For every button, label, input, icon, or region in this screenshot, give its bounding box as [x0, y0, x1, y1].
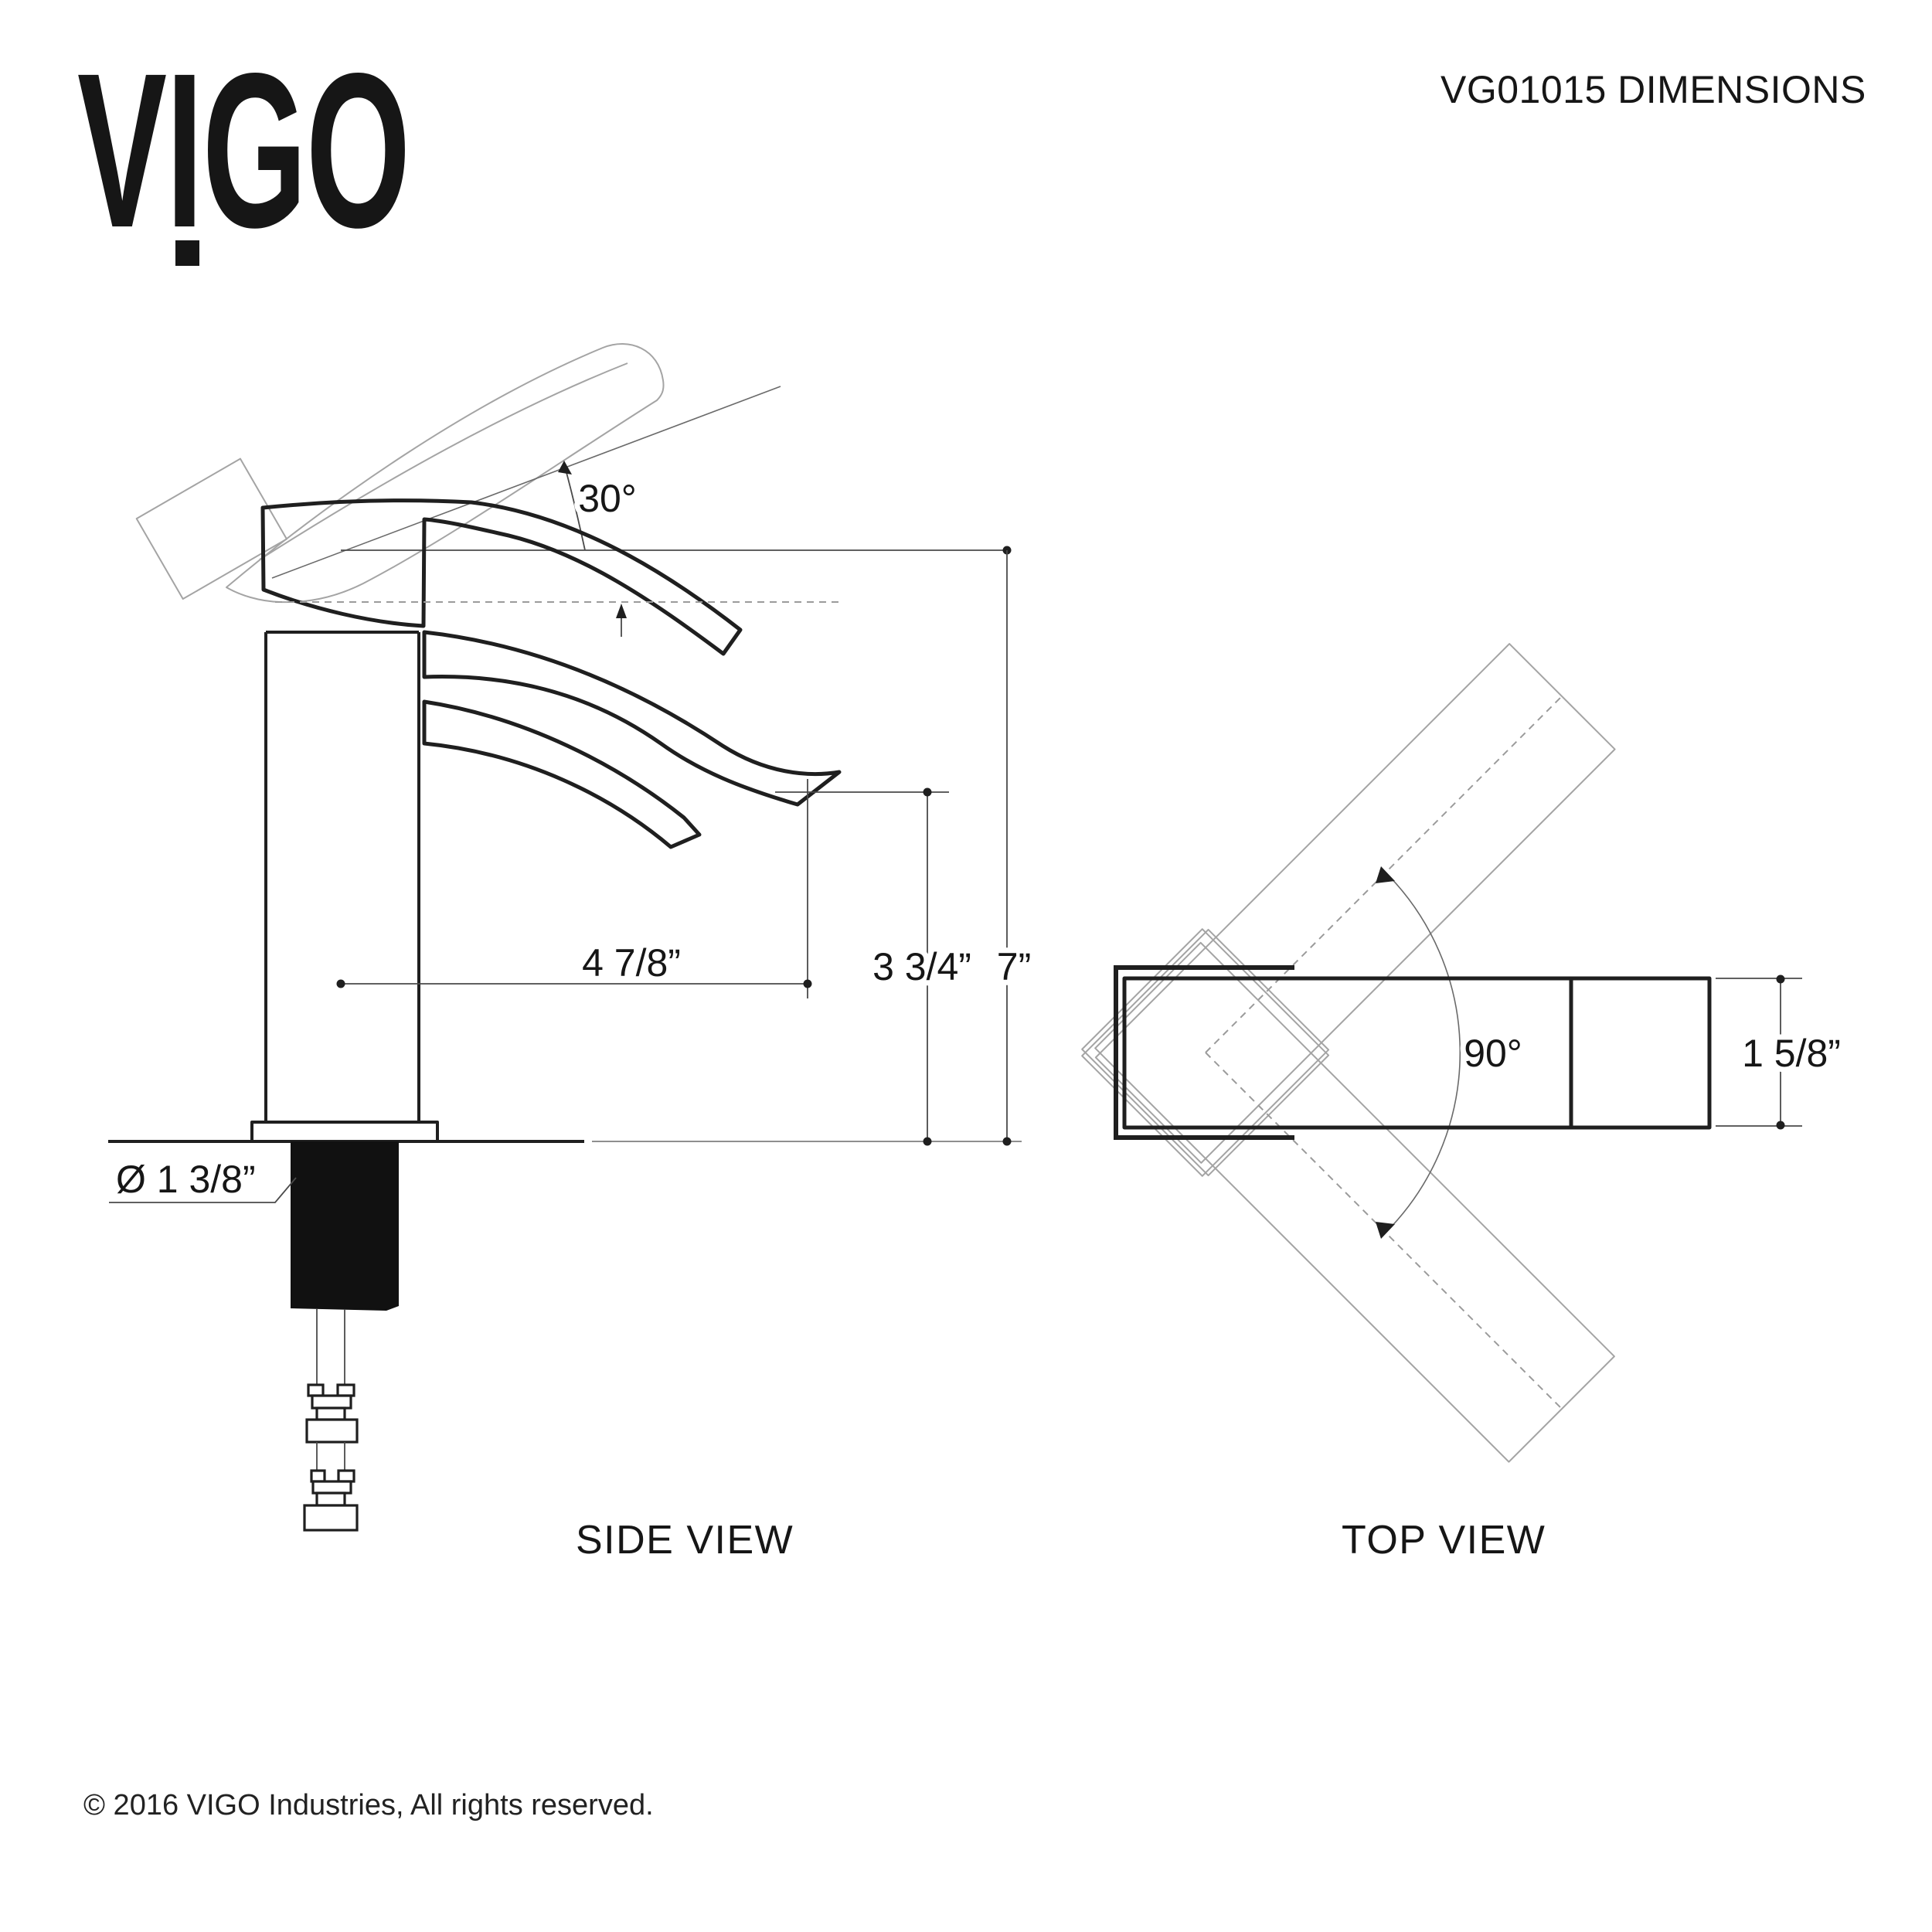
top-ghost-handle-down: [1082, 929, 1622, 1469]
dim-overall-height: [1003, 550, 1012, 1146]
side-view-caption: SIDE VIEW: [576, 1518, 794, 1563]
faucet-column: [266, 632, 419, 1122]
mounting-flange: [252, 1122, 437, 1141]
label-spout-reach: 4 7/8”: [582, 941, 681, 985]
base-bracket: [1116, 968, 1294, 1138]
label-shank-diameter: Ø 1 3/8”: [116, 1158, 256, 1201]
swivel-arc: [1376, 866, 1460, 1239]
threaded-shank: [291, 1141, 399, 1311]
dimension-sheet: VIGO VG01015 DIMENSIONS: [0, 0, 1932, 1932]
top-view-drawing: 90° 1 5/8” TOP VIEW: [1082, 636, 1841, 1563]
brand-logo-text: VIGO: [77, 28, 410, 274]
label-handle-width: 1 5/8”: [1742, 1032, 1841, 1075]
logo-i-dot: [175, 240, 199, 266]
label-overall-height: 7”: [997, 945, 1031, 988]
label-handle-angle: 30°: [578, 477, 637, 520]
top-view-caption: TOP VIEW: [1342, 1518, 1546, 1563]
side-view-drawing: 30° 4 7/8” 3 3/4” 7” Ø 1 3/8” SIDE VIEW: [108, 344, 1031, 1563]
angle-30-annotation: [272, 386, 1012, 578]
label-handle-swivel: 90°: [1464, 1032, 1522, 1075]
supply-connector: [304, 1309, 357, 1530]
brand-logo: VIGO: [77, 28, 410, 274]
page-title: VG01015 DIMENSIONS: [1440, 68, 1866, 111]
copyright-notice: © 2016 VIGO Industries, All rights reser…: [83, 1789, 654, 1821]
dim-spout-reach: [337, 779, 812, 998]
label-spout-height: 3 3/4”: [872, 945, 971, 988]
handle-bar: [1124, 978, 1709, 1128]
faucet-spout: [424, 632, 839, 847]
